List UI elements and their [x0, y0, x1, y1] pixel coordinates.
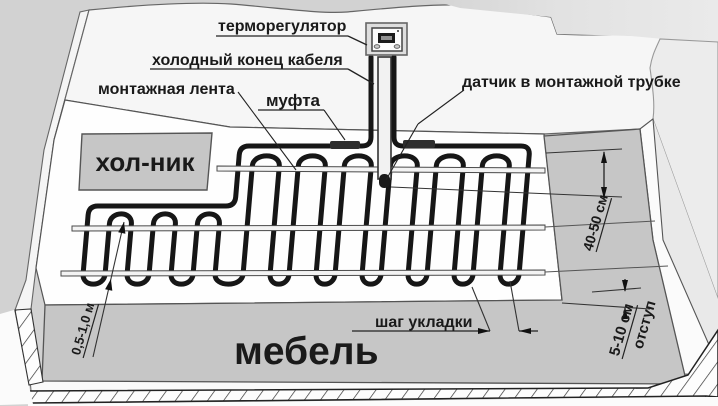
- svg-text:шаг укладки: шаг укладки: [375, 314, 473, 331]
- svg-text:мебель: мебель: [234, 330, 379, 373]
- svg-text:терморегулятор: терморегулятор: [218, 18, 347, 35]
- svg-text:муфта: муфта: [266, 91, 321, 110]
- svg-text:хол-ник: хол-ник: [96, 147, 196, 177]
- svg-text:датчик в монтажной трубке: датчик в монтажной трубке: [462, 74, 681, 91]
- svg-text:монтажная лента: монтажная лента: [98, 81, 235, 98]
- svg-text:холодный конец кабеля: холодный конец кабеля: [152, 52, 343, 69]
